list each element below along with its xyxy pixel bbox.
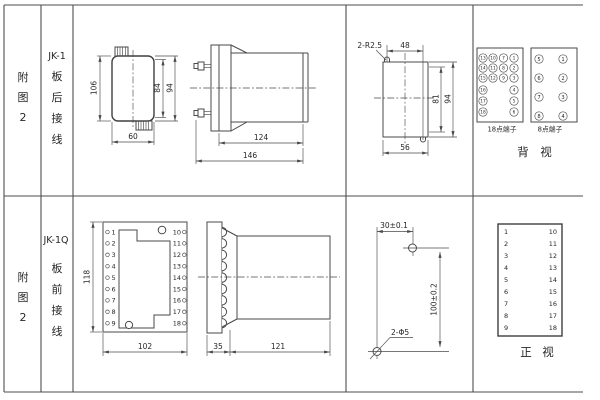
terminal-dot xyxy=(106,230,110,234)
relay-body-outline xyxy=(119,230,170,328)
table-number: 13 xyxy=(549,264,557,272)
block-8-label: 8点端子 xyxy=(538,125,563,134)
mounting-screw-top xyxy=(194,62,211,70)
dim-106: 106 xyxy=(90,56,112,121)
table-number: 6 xyxy=(504,288,508,296)
terminal-number: 7 xyxy=(502,56,505,62)
dim-label: 35 xyxy=(213,342,223,351)
table-number: 1 xyxy=(504,228,508,236)
terminal-number: 1 xyxy=(561,57,564,63)
terminal-number: 17 xyxy=(173,308,181,316)
dim-label: 146 xyxy=(243,151,258,160)
table-number: 10 xyxy=(549,228,557,236)
front-view-caption: 正 视 xyxy=(520,345,554,359)
terminal-number: 17 xyxy=(480,99,486,105)
radius-label: 2-R2.5 xyxy=(357,41,382,50)
terminal-number: 10 xyxy=(490,56,496,62)
terminal-number: 1 xyxy=(513,56,516,62)
dim-35: 35 xyxy=(207,330,230,356)
terminal-dot xyxy=(183,299,187,303)
terminal-number: 6 xyxy=(537,76,540,82)
table-number: 9 xyxy=(504,324,508,332)
terminal-dot xyxy=(106,321,110,325)
block-18-label: 18点端子 xyxy=(487,125,516,134)
wiring-char: 后 xyxy=(52,91,63,104)
top-row: 附 图 2 JK-1 板 后 接 线 xyxy=(18,41,578,164)
front-outline-drawing: 106 84 94 60 xyxy=(90,47,179,145)
terminal-number: 2 xyxy=(112,240,116,248)
mounting-hole-bottom xyxy=(125,321,132,328)
terminal-number: 2 xyxy=(513,66,516,72)
terminal-bump xyxy=(222,239,227,248)
top-connector-block xyxy=(115,47,128,56)
figure-label-top: 附 图 2 xyxy=(18,70,29,124)
terminal-number: 14 xyxy=(480,66,486,72)
wiring-char: 前 xyxy=(52,282,63,296)
dim-label: 94 xyxy=(166,83,175,93)
terminal-number: 13 xyxy=(173,263,181,271)
terminal-bump xyxy=(222,250,227,259)
terminal-number: 16 xyxy=(173,297,181,305)
terminal-dot xyxy=(183,321,187,325)
terminal-number: 11 xyxy=(173,240,181,248)
terminal-number: 3 xyxy=(112,251,116,259)
terminal-bump xyxy=(222,273,227,282)
relay-body xyxy=(237,236,330,319)
terminal-number: 18 xyxy=(480,110,486,116)
terminal-dot xyxy=(183,230,187,234)
terminal-number: 3 xyxy=(561,95,564,101)
terminal-number: 12 xyxy=(490,76,496,82)
dim-label: 84 xyxy=(153,83,162,93)
wiring-char: 板 xyxy=(52,69,63,83)
wiring-char: 线 xyxy=(52,324,63,338)
terminal-number: 15 xyxy=(480,76,486,82)
terminal-block-18: 13 10 7 1 14 11 8 2 15 12 9 3 16 4 17 5 … xyxy=(477,48,523,134)
terminal-dot xyxy=(106,242,110,246)
bottom-row: 附 图 2 JK-1Q 板 前 接 线 1 2 3 4 5 6 7 8 9 xyxy=(18,221,563,359)
technical-drawing-page: 附 图 2 JK-1 板 后 接 线 xyxy=(0,0,600,400)
terminal-dot xyxy=(106,299,110,303)
dim-118: 118 xyxy=(83,222,103,332)
dim-124: 124 xyxy=(219,124,303,146)
terminal-dot xyxy=(183,287,187,291)
terminal-number: 18 xyxy=(173,320,181,328)
terminal-bump xyxy=(222,307,227,316)
terminal-block-8: 5 1 6 2 7 3 8 4 8点端子 xyxy=(531,48,577,134)
table-number: 7 xyxy=(504,300,508,308)
terminal-dot xyxy=(183,264,187,268)
wiring-char: 接 xyxy=(52,112,63,125)
figure-char: 2 xyxy=(20,111,27,124)
rear-view-caption: 背 视 xyxy=(517,145,552,159)
dim-121: 121 xyxy=(230,321,330,356)
table-number: 14 xyxy=(549,276,557,284)
caption-char: 背 xyxy=(517,145,529,159)
table-number: 11 xyxy=(549,240,557,248)
wiring-char: 接 xyxy=(52,304,63,317)
side-view-drawing-top: 124 146 xyxy=(190,45,318,164)
dim-56: 56 xyxy=(383,140,428,156)
dim-label: 48 xyxy=(400,41,410,50)
mounting-hole-top xyxy=(158,226,166,234)
table-number: 17 xyxy=(549,312,557,320)
dim-label: 100±0.2 xyxy=(430,283,439,316)
table-number: 18 xyxy=(549,324,557,332)
dim-84: 84 xyxy=(153,60,166,118)
terminal-number: 9 xyxy=(112,320,116,328)
terminal-dot xyxy=(183,310,187,314)
dim-label: 102 xyxy=(138,342,153,351)
terminal-number: 3 xyxy=(513,76,516,82)
terminal-number: 13 xyxy=(480,56,486,62)
wiring-char: 板 xyxy=(52,261,63,275)
model-wiring-label-top: JK-1 板 后 接 线 xyxy=(47,51,66,146)
table-number: 8 xyxy=(504,312,508,320)
dim-label: 124 xyxy=(254,133,269,142)
terminal-number: 16 xyxy=(480,88,486,94)
mounting-screw-bottom xyxy=(194,109,211,117)
radius-callout: 2-R2.5 xyxy=(357,41,386,60)
terminal-number: 7 xyxy=(112,297,116,305)
side-view-drawing-bottom: 35 121 xyxy=(198,222,340,356)
dim-100: 100±0.2 xyxy=(430,252,441,347)
model-label: JK-1 xyxy=(47,51,66,62)
terminal-dot xyxy=(106,253,110,257)
terminal-dot xyxy=(106,287,110,291)
terminal-number: 10 xyxy=(173,228,181,236)
drill-plan-drawing: 30±0.1 100±0.2 2-Φ5 xyxy=(368,221,449,359)
hole-label: 2-Φ5 xyxy=(391,328,409,337)
terminal-number: 5 xyxy=(513,99,516,105)
figure-char: 附 xyxy=(18,270,29,284)
wiring-char: 线 xyxy=(52,132,63,146)
cutout-rect xyxy=(383,62,428,137)
terminal-number: 4 xyxy=(112,263,116,271)
front-view-table: 110 211 312 413 514 615 716 817 918 正 视 xyxy=(498,224,562,359)
terminal-dot xyxy=(183,242,187,246)
table-number: 15 xyxy=(549,288,557,296)
terminal-number: 5 xyxy=(112,274,116,282)
dim-label: 118 xyxy=(83,270,92,285)
relay-dimension-drawing: 附 图 2 JK-1 板 后 接 线 xyxy=(0,0,600,400)
dim-102: 102 xyxy=(103,333,187,356)
dim-label: 60 xyxy=(128,132,138,141)
figure-char: 2 xyxy=(20,311,27,324)
table-number: 2 xyxy=(504,240,508,248)
table-number: 12 xyxy=(549,252,557,260)
terminal-dot xyxy=(183,253,187,257)
dim-label: 81 xyxy=(432,94,441,104)
terminal-dot xyxy=(106,264,110,268)
terminal-number: 11 xyxy=(490,66,496,72)
dim-label: 30±0.1 xyxy=(380,221,408,230)
table-number: 4 xyxy=(504,264,508,272)
terminal-number: 6 xyxy=(513,110,516,116)
dim-label: 56 xyxy=(400,143,410,152)
dim-label: 106 xyxy=(90,81,99,96)
dim-label: 121 xyxy=(271,342,286,351)
panel-cutout-drawing: 2-R2.5 48 81 94 xyxy=(357,41,457,156)
bottom-connector-block xyxy=(136,121,152,130)
terminal-bump xyxy=(222,284,227,293)
front-plate xyxy=(207,222,222,333)
table-number: 16 xyxy=(549,300,557,308)
model-wiring-label-bottom: JK-1Q 板 前 接 线 xyxy=(43,235,69,338)
terminal-number: 14 xyxy=(173,274,181,282)
figure-char: 附 xyxy=(18,70,29,84)
figure-char: 图 xyxy=(18,291,29,304)
caption-char: 视 xyxy=(542,345,554,359)
terminal-number: 1 xyxy=(112,228,116,236)
terminal-number: 12 xyxy=(173,251,181,259)
dim-146: 146 xyxy=(196,120,303,164)
relay-body xyxy=(231,53,303,122)
caption-char: 正 xyxy=(520,345,532,359)
terminal-number: 15 xyxy=(173,285,181,293)
model-label: JK-1Q xyxy=(43,235,69,246)
front-mount-drawing: 1 2 3 4 5 6 7 8 9 10 11 12 13 14 15 16 1… xyxy=(83,222,188,356)
rear-view: 13 10 7 1 14 11 8 2 15 12 9 3 16 4 17 5 … xyxy=(477,48,577,159)
terminal-number: 8 xyxy=(537,114,540,120)
terminal-number: 2 xyxy=(561,76,564,82)
table-number: 5 xyxy=(504,276,508,284)
terminal-bump xyxy=(222,262,227,271)
terminal-number: 9 xyxy=(502,76,505,82)
terminal-number: 8 xyxy=(112,308,116,316)
terminal-dot xyxy=(106,310,110,314)
figure-label-bottom: 附 图 2 xyxy=(18,270,29,324)
terminal-number: 4 xyxy=(513,88,516,94)
terminal-dot xyxy=(106,276,110,280)
dim-label: 94 xyxy=(444,94,453,104)
dim-30: 30±0.1 xyxy=(377,221,413,232)
caption-char: 视 xyxy=(540,145,552,159)
table-number: 3 xyxy=(504,252,508,260)
terminal-bump xyxy=(222,296,227,305)
terminal-number: 8 xyxy=(502,66,505,72)
table-grid xyxy=(4,5,583,392)
dim-48: 48 xyxy=(387,41,423,51)
terminal-number: 5 xyxy=(537,57,540,63)
figure-char: 图 xyxy=(18,91,29,104)
terminal-dot xyxy=(183,276,187,280)
terminal-number: 7 xyxy=(537,95,540,101)
terminal-number: 6 xyxy=(112,285,116,293)
